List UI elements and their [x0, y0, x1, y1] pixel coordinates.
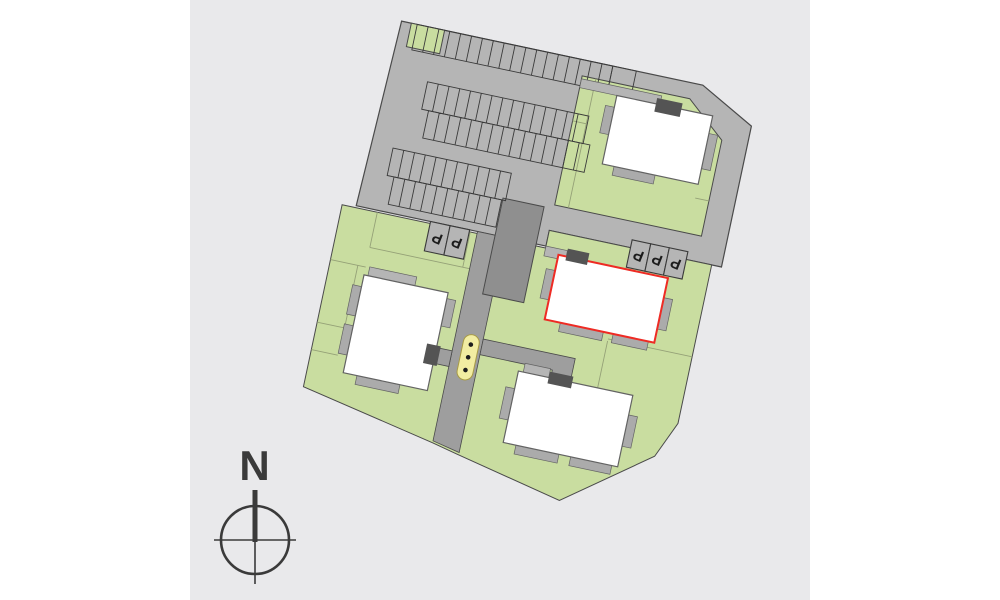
- compass: N: [206, 444, 304, 598]
- compass-rose: [206, 488, 304, 598]
- compass-north-label: N: [206, 444, 304, 488]
- site-plan: PPPPP: [275, 11, 835, 578]
